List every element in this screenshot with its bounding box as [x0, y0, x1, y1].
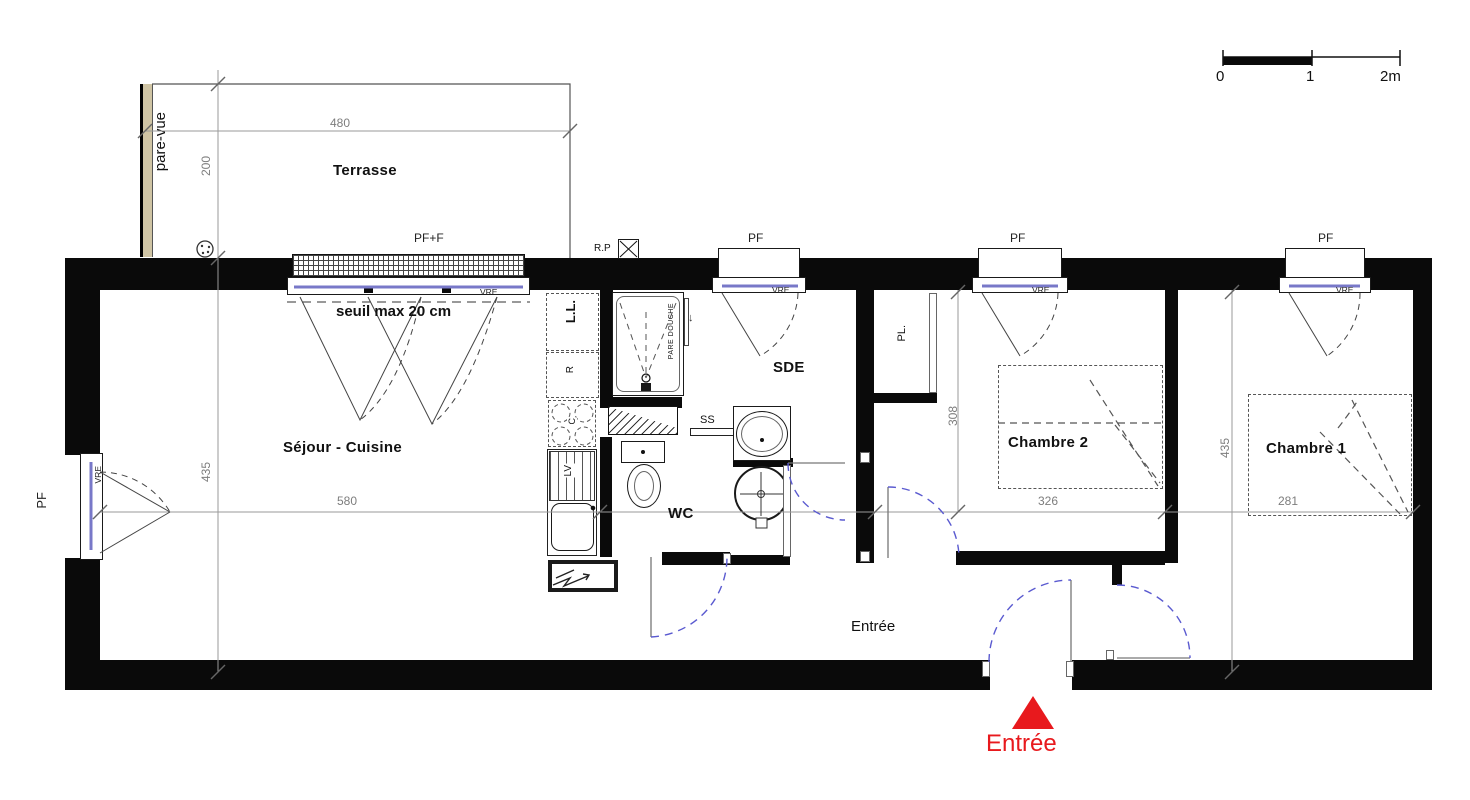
heater-detail	[740, 472, 783, 528]
scale-bar	[1223, 50, 1400, 66]
shelf-label: SS	[700, 414, 715, 426]
vre-label-ch2: VRE	[1032, 285, 1049, 295]
scale-zero: 0	[1216, 68, 1224, 85]
dim-200: 200	[199, 156, 213, 176]
dimension-lines	[100, 70, 1413, 672]
door-arcs	[651, 463, 1190, 662]
shower-screen-label: PARE DOUCHE	[668, 303, 675, 359]
plan-linework	[0, 0, 1470, 800]
pf-label-ch2: PF	[1010, 231, 1025, 245]
dim-ticks	[93, 77, 1420, 679]
bedroom1-label: Chambre 1	[1266, 440, 1346, 457]
living-label: Séjour - Cuisine	[283, 439, 402, 456]
terrace-label: Terrasse	[333, 162, 397, 179]
vre-label-sde: VRE	[772, 285, 789, 295]
pf-label-sde: PF	[748, 231, 763, 245]
floor-plan-canvas: pare-vue	[0, 0, 1470, 800]
dim-480: 480	[330, 116, 350, 130]
rp-cross	[620, 241, 637, 257]
sde-label: SDE	[773, 359, 805, 376]
sink-faucet	[591, 506, 596, 511]
dim-308: 308	[946, 406, 960, 426]
window-swings	[100, 293, 1360, 553]
dim-326: 326	[1038, 494, 1058, 508]
pf-label-west: PF	[34, 492, 49, 509]
window-glazing	[91, 286, 1360, 550]
dim-435-living: 435	[199, 462, 213, 482]
closet-label: PL.	[896, 325, 908, 342]
dim-281: 281	[1278, 494, 1298, 508]
scale-two: 2m	[1380, 68, 1401, 85]
wc-label: WC	[668, 505, 694, 522]
vre-label-west: VRE	[93, 466, 103, 483]
fridge-label: R	[565, 366, 576, 373]
seuil-label: seuil max 20 cm	[336, 303, 451, 320]
vre-label-pff: VRE	[480, 287, 497, 297]
dim-435-bedroom1: 435	[1218, 438, 1232, 458]
vre-label-ch1: VRE	[1336, 285, 1353, 295]
drain-symbol	[197, 241, 213, 257]
pf-label-ch1: PF	[1318, 231, 1333, 245]
hob-burners	[552, 404, 593, 445]
bedroom2-label: Chambre 2	[1008, 434, 1088, 451]
hob-label: C	[567, 418, 577, 425]
panel-arrows	[553, 570, 589, 586]
scale-one: 1	[1306, 68, 1314, 85]
entry-arrow-icon	[1012, 696, 1054, 729]
dishwasher-label: LV	[562, 464, 575, 478]
washer-label: L.L.	[563, 300, 578, 323]
dim-580: 580	[337, 494, 357, 508]
shower-arrow: ↓	[688, 312, 694, 324]
rp-label: R.P	[594, 243, 611, 254]
pff-label: PF+F	[414, 231, 444, 245]
door-leaves	[651, 463, 1190, 662]
entry-marker-label: Entrée	[986, 730, 1057, 758]
hall-label: Entrée	[851, 618, 895, 635]
